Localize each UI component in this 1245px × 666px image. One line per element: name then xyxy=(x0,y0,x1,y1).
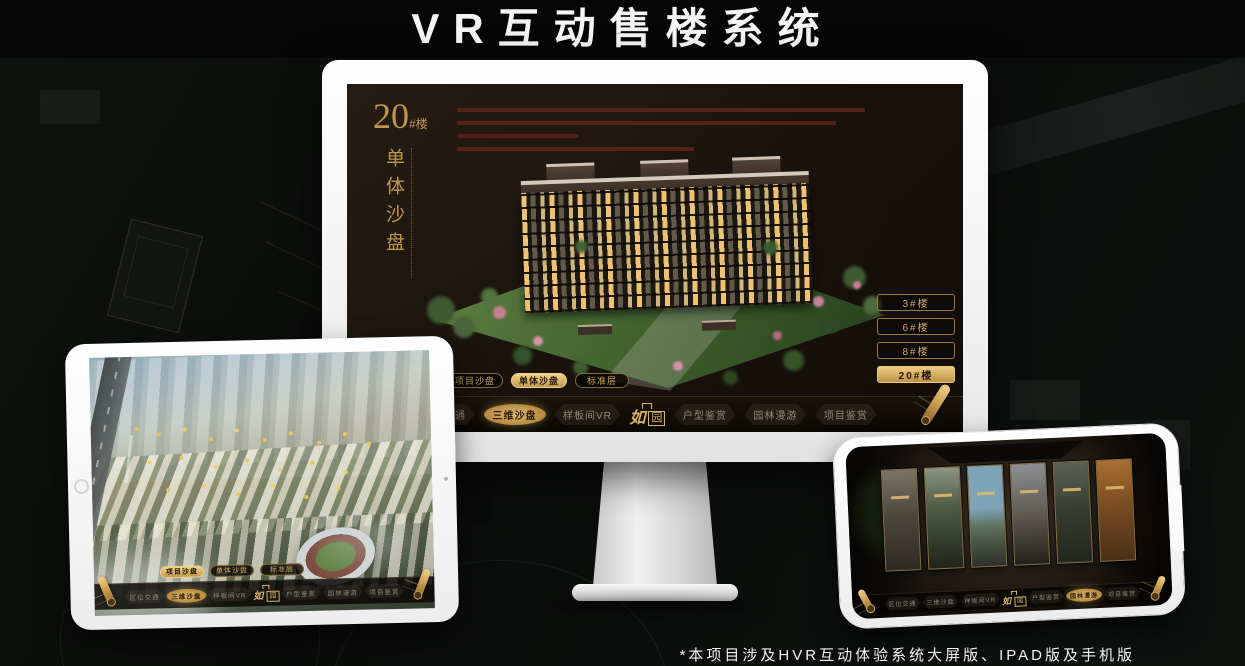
monitor-shadow xyxy=(545,601,765,613)
tree xyxy=(723,370,738,385)
page-title: VR互动售楼系统 xyxy=(0,0,1245,58)
blossom-tree xyxy=(533,336,543,346)
blossom-tree xyxy=(673,361,683,371)
nav-item-project-view[interactable]: 项目鉴赏 xyxy=(815,404,877,425)
subtab-standard-floor[interactable]: 标准层 xyxy=(260,563,304,576)
gallery-card[interactable] xyxy=(1096,458,1137,562)
tree xyxy=(427,296,455,324)
subtab-single-sandbox[interactable]: 单体沙盘 xyxy=(210,564,254,577)
tablet-frame: 项目沙盘 单体沙盘 标准层 区位交通 三维沙盘 样板间VR 如园 户型鉴赏 园林… xyxy=(65,336,459,631)
subtab-standard-floor[interactable]: 标准层 xyxy=(575,373,629,388)
nav-item-floorplan[interactable]: 户型鉴赏 xyxy=(674,404,736,425)
background-building xyxy=(40,90,100,124)
nav-item-garden-roam[interactable]: 园林漫游 xyxy=(323,584,363,599)
nav-item-garden-roam[interactable]: 园林漫游 xyxy=(1066,588,1103,603)
brand-logo: 如园 xyxy=(253,585,279,603)
phone-screen: 区位交通 三维沙盘 样板间VR 如园 户型鉴赏 园林漫游 项目鉴赏 xyxy=(845,433,1172,619)
footnote-text: *本项目涉及HVR互动体验系统大屏版、IPAD版及手机版 xyxy=(680,644,1135,665)
logo-gate-icon xyxy=(1011,590,1017,594)
blossom-tree xyxy=(853,281,861,289)
nav-item-floorplan[interactable]: 户型鉴赏 xyxy=(1028,590,1065,605)
subtab-project-sandbox[interactable]: 项目沙盘 xyxy=(447,373,503,388)
gallery-card[interactable] xyxy=(1010,462,1051,566)
gallery-card[interactable] xyxy=(924,466,965,570)
nav-item-location[interactable]: 区位交通 xyxy=(884,596,921,611)
nav-item-model-room-vr[interactable]: 样板间VR xyxy=(554,404,621,425)
tablet-screen: 项目沙盘 单体沙盘 标准层 区位交通 三维沙盘 样板间VR 如园 户型鉴赏 园林… xyxy=(89,350,435,616)
panorama-gallery xyxy=(881,458,1136,571)
building-render xyxy=(425,148,899,392)
subtab-group: 项目沙盘 单体沙盘 标准层 xyxy=(447,373,629,388)
tree xyxy=(783,350,804,371)
nav-item-project-view[interactable]: 项目鉴赏 xyxy=(1104,586,1141,601)
block-number: 20 xyxy=(373,96,409,136)
nav-item-model-room-vr[interactable]: 样板间VR xyxy=(960,592,1000,607)
logo-gate-icon xyxy=(263,585,270,589)
tree xyxy=(513,346,532,365)
nav-item-3d-sandbox[interactable]: 三维沙盘 xyxy=(166,588,206,603)
brand-logo: 如园 xyxy=(1002,590,1027,607)
blossom-tree xyxy=(773,331,782,340)
block-number-suffix: #楼 xyxy=(409,117,428,131)
blossom-tree xyxy=(493,306,506,319)
page: VR互动售楼系统 20#楼 单体沙盘 xyxy=(0,0,1245,666)
tablet-camera-dot xyxy=(444,477,448,481)
floor-button-3[interactable]: 3#楼 xyxy=(877,294,955,311)
tree xyxy=(823,316,840,333)
nav-item-model-room-vr[interactable]: 样板间VR xyxy=(208,587,252,602)
nav-item-3d-sandbox[interactable]: 三维沙盘 xyxy=(484,404,546,425)
tree xyxy=(575,240,588,253)
brand-logo: 如园 xyxy=(629,403,665,427)
floor-button-group: 3#楼 6#楼 8#楼 20#楼 xyxy=(877,294,955,383)
subtab-project-sandbox[interactable]: 项目沙盘 xyxy=(160,565,204,578)
block-vertical-title: 单体沙盘 xyxy=(380,148,412,278)
tablet-home-button[interactable] xyxy=(74,479,89,494)
floor-button-8[interactable]: 8#楼 xyxy=(877,342,955,359)
block-label: 20#楼 xyxy=(373,98,428,134)
gallery-card[interactable] xyxy=(967,464,1008,568)
gallery-card[interactable] xyxy=(1053,460,1094,564)
subtab-single-sandbox[interactable]: 单体沙盘 xyxy=(511,373,567,388)
logo-gate-icon xyxy=(642,403,652,409)
entrance-canopy xyxy=(578,324,612,335)
phone-frame: 区位交通 三维沙盘 样板间VR 如园 户型鉴赏 园林漫游 项目鉴赏 xyxy=(832,422,1186,629)
floor-button-20[interactable]: 20#楼 xyxy=(877,366,955,383)
background-building xyxy=(1010,380,1080,420)
nav-item-project-view[interactable]: 项目鉴赏 xyxy=(364,583,404,598)
monitor-stand-neck xyxy=(593,460,717,586)
tree xyxy=(481,288,498,305)
gallery-card[interactable] xyxy=(881,468,922,572)
building-number-badges xyxy=(135,427,139,431)
nav-item-3d-sandbox[interactable]: 三维沙盘 xyxy=(922,594,959,609)
tree xyxy=(763,240,778,255)
monitor-stand-base xyxy=(572,584,738,601)
floor-button-6[interactable]: 6#楼 xyxy=(877,318,955,335)
nav-item-location[interactable]: 区位交通 xyxy=(124,589,164,604)
tree xyxy=(453,316,475,338)
nav-item-garden-roam[interactable]: 园林漫游 xyxy=(744,404,806,425)
nav-item-floorplan[interactable]: 户型鉴赏 xyxy=(281,585,321,600)
entrance-canopy xyxy=(702,320,736,331)
blossom-tree xyxy=(813,296,824,307)
